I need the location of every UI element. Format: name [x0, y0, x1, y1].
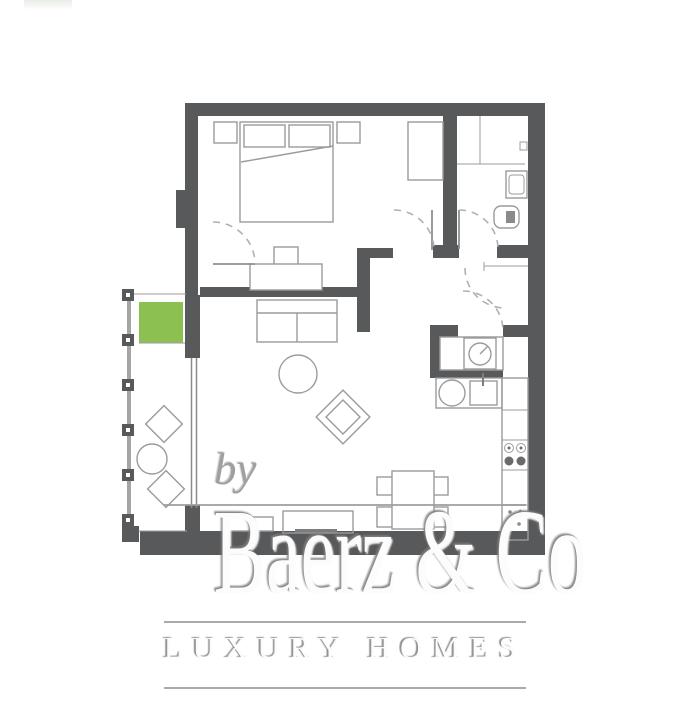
- wall-left-bedroom: [185, 103, 198, 295]
- balcony-railing: [127, 291, 131, 537]
- wall-hall-vertical: [357, 248, 370, 332]
- washer-cabinet: [440, 337, 503, 370]
- watermark-rule-bottom: [164, 687, 526, 689]
- sink-counter: [436, 378, 502, 408]
- blanket-fold: [241, 146, 333, 162]
- planter-icon: [139, 302, 183, 343]
- double-bed: [240, 122, 333, 222]
- kitchen-door-swing: [463, 291, 503, 331]
- wall-left-living-upper: [185, 295, 200, 358]
- toilet-tank: [506, 211, 515, 223]
- desk: [250, 264, 322, 290]
- wall-bathroom-bottom-left: [433, 245, 459, 258]
- balcony-chair-top: [146, 406, 183, 443]
- round-basin: [439, 380, 465, 406]
- balcony-chair-bottom: [148, 471, 185, 508]
- washing-machine-dial: [480, 346, 488, 354]
- watermark-tagline: LUXURY HOMES: [140, 632, 550, 663]
- bathroom-fixtures: [457, 116, 527, 228]
- entry-door-swing: [465, 268, 505, 308]
- watermark-rule-middle: [164, 621, 526, 623]
- wall-kitchen-top-right: [503, 325, 528, 337]
- watermark-brand: Baerz & Co: [214, 492, 476, 614]
- wall-window-pier: [176, 190, 186, 228]
- pillow-left: [244, 125, 285, 147]
- nightstand-right: [337, 122, 360, 143]
- wall-kitchen-inner: [437, 370, 503, 378]
- armchair: [316, 390, 370, 444]
- stove-4-burners: [505, 444, 526, 466]
- washbasin-bowl: [509, 175, 524, 194]
- towel-rail-icon: [520, 142, 527, 150]
- bathroom-door-swing: [459, 210, 498, 249]
- floor-plan-image: by Baerz & Co LUXURY HOMES: [0, 0, 690, 719]
- bedroom-door-swing: [213, 222, 255, 264]
- hallway: [484, 262, 528, 271]
- balcony-table: [137, 444, 167, 474]
- nightstand-left: [214, 122, 237, 143]
- wall-bedroom-bathroom: [443, 116, 457, 253]
- hall-bedroom-door-swing: [394, 210, 434, 250]
- wall-left-living-lower: [185, 505, 200, 537]
- balcony-corner-block: [122, 526, 139, 542]
- wardrobe: [408, 122, 443, 180]
- pillow-right: [289, 125, 330, 147]
- wall-bathroom-bottom-right: [497, 245, 528, 258]
- wall-top: [185, 103, 545, 116]
- round-coffee-table: [279, 355, 317, 393]
